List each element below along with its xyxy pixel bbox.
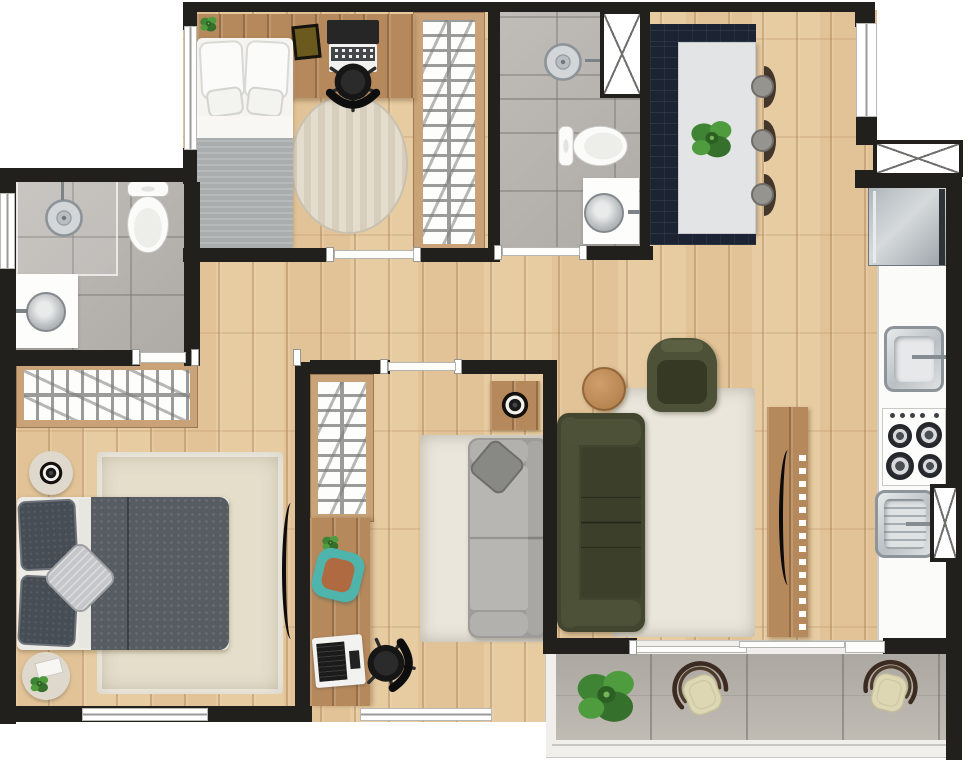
kitchen-island-top [650,24,756,42]
sliding-door-track [635,646,747,653]
armchair-olive [647,338,717,412]
master-wardrobe-hatch [24,370,190,420]
sofa-olive [557,413,645,632]
duct-shaft [873,140,963,177]
office-wardrobe-hatch [318,382,366,514]
shower-head [61,180,64,200]
book-stack [291,24,321,61]
wall [310,360,390,374]
kitchen-island [650,24,680,245]
wall [883,638,948,654]
single-bed [197,38,293,250]
bed-pillow-small [205,86,245,119]
console-shelf-slats [799,455,806,630]
wall [295,362,310,722]
wall [183,248,332,262]
door-jamb [326,247,334,262]
sliding-door-track [739,641,845,648]
plant-icon [28,672,52,696]
office-chair-icon [319,52,387,120]
door-jamb [132,349,140,365]
door-jamb [629,640,637,655]
wall [0,350,140,366]
entry-door [856,23,877,117]
floor-plan [0,0,968,760]
window [82,708,208,721]
sofa-gray [468,438,548,638]
wall [488,2,500,248]
wall [0,168,196,182]
bedroom-top-wardrobe-hatch [423,20,475,244]
door-jamb [293,349,301,366]
door-jamb [380,359,388,374]
fridge [868,186,948,266]
wall [183,2,875,12]
wall [543,638,637,654]
door-jamb [191,349,199,366]
door-office [388,362,456,371]
window [360,708,492,721]
basin-faucet [628,210,640,214]
exterior [0,0,183,168]
stool [750,66,776,108]
plant-icon [570,650,646,742]
door-jamb [413,247,421,262]
door-bathroom-top [502,247,580,256]
wall [946,170,962,760]
window [0,193,15,269]
bed-blanket [197,138,293,250]
office-chair-icon [351,625,430,704]
toilet-icon [121,179,175,255]
toilet-icon [556,120,630,172]
wall [543,360,557,652]
duct-shaft [930,484,960,562]
wall [184,182,200,366]
sink-faucet [912,355,946,359]
duct-shaft [600,10,644,98]
plant-icon [198,13,220,35]
kitchen-sink [884,326,944,392]
shower-drain-icon [42,196,86,240]
round-basin [26,292,66,332]
bed-pillow-small [245,86,284,118]
shower-drain-icon [541,40,585,84]
speaker-icon [39,461,63,485]
gas-cooktop [882,408,946,486]
balcony-railing-line [552,744,952,746]
speaker-icon [501,391,529,419]
wall [585,246,653,260]
door-jamb [579,245,587,260]
laptop [327,20,379,44]
basin-faucet [16,309,28,313]
tv [779,450,797,585]
exterior [0,722,546,760]
bed-sheet-fold [197,116,293,140]
door-bathroom-left [140,352,186,363]
door-balcony-service [845,641,885,653]
stool [750,174,776,216]
double-bed [17,497,229,650]
tile-divider [500,98,640,100]
plant-icon [686,112,740,166]
round-basin [584,193,624,233]
door-jamb [494,245,502,260]
stool [750,120,776,162]
window [184,26,197,150]
door-bedroom-top [334,250,414,259]
exterior [877,0,968,142]
round-coffee-table [582,367,626,411]
